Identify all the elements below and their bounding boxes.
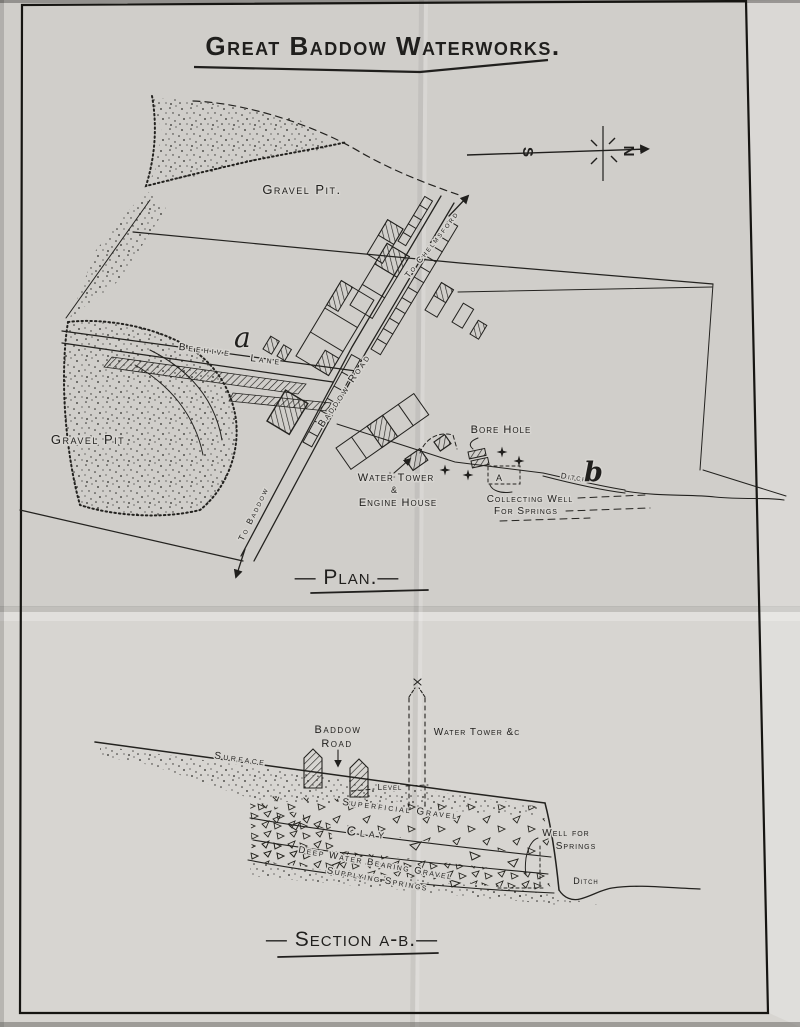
waterworks-drawing: Great Baddow Waterworks. S N xyxy=(0,0,800,1027)
label-gravel-pit-top: Gravel Pit. xyxy=(262,182,341,197)
photo-edge-bottom xyxy=(0,1022,800,1027)
marker-a-well: A xyxy=(496,473,502,483)
label-water-tower: Water Tower xyxy=(358,472,435,484)
label-ditch-section: Ditch xyxy=(573,876,599,886)
label-baddow-section: Baddow xyxy=(314,724,361,736)
marker-a: a xyxy=(234,321,251,354)
compass-north-label: N xyxy=(620,146,637,157)
horizontal-fold-crease xyxy=(0,606,800,612)
compass-south-label: S xyxy=(519,147,536,157)
label-engine-house: Engine House xyxy=(359,497,437,509)
label-road-section: Road xyxy=(321,738,352,750)
label-ampersand: & xyxy=(391,485,397,495)
label-springs: Springs xyxy=(556,841,597,852)
scanned-drawing-sheet: Great Baddow Waterworks. S N xyxy=(0,0,800,1027)
label-collecting-well: Collecting Well xyxy=(487,494,574,505)
label-well-for: Well for xyxy=(542,828,589,839)
photo-edge-left xyxy=(0,0,4,1027)
label-water-tower-etc: Water Tower &c xyxy=(434,727,521,738)
label-gravel-pit-left: Gravel Pit xyxy=(51,432,125,447)
label-for-springs: For Springs xyxy=(494,506,558,517)
plan-caption: — Plan.— xyxy=(295,566,400,589)
section-caption: — Section a-b.— xyxy=(266,928,438,951)
label-bore-hole: Bore Hole xyxy=(471,424,532,436)
label-level: Level xyxy=(378,783,403,792)
page-title: Great Baddow Waterworks. xyxy=(205,31,560,61)
marker-b: b xyxy=(584,457,603,488)
